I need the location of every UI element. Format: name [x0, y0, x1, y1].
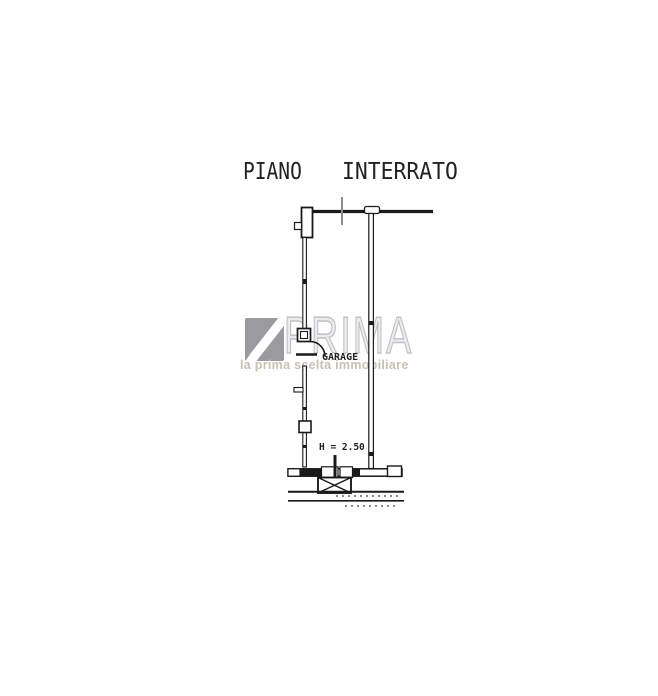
page-title: PIANO INTERRATO [0, 0, 658, 696]
title-interrato: INTERRATO [342, 161, 458, 184]
title-piano: PIANO [243, 161, 302, 184]
floor-plan-page: PRIMA la prima scelta immobiliare [0, 0, 658, 696]
